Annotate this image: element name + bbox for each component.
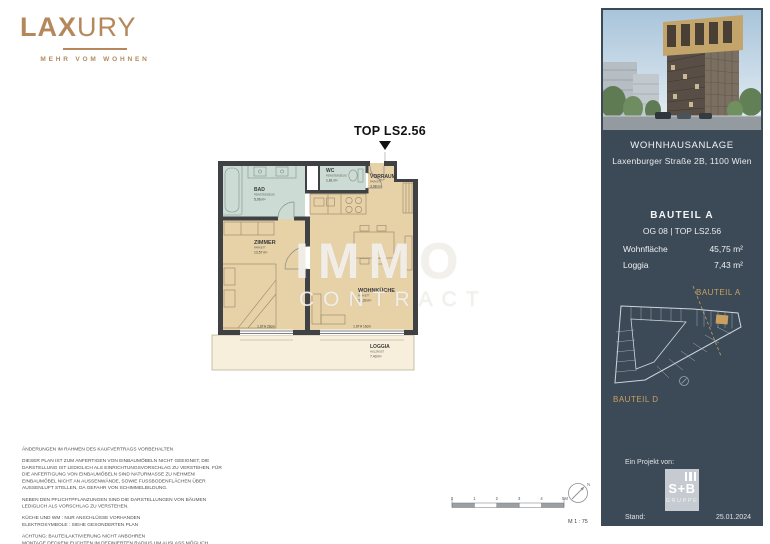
brand-divider [63, 48, 127, 50]
room-label-wc: WC [326, 168, 335, 174]
room-label-loggia: LOGGIA [370, 344, 390, 350]
building-rendering [603, 10, 761, 130]
area-row-value: 7,43 m² [714, 260, 743, 270]
dim-left-window: 1.STH 26cm [257, 325, 275, 329]
project-title: WOHNHAUSANLAGE [601, 140, 763, 151]
room-label-vorraum: VORRAUM [370, 174, 396, 180]
shaft-area [307, 163, 318, 190]
brand-word-bold: LAX [20, 12, 77, 42]
disclaimer-paragraph: ÄNDERUNGEN IM RAHMEN DES KAUFVERTRAGS VO… [22, 446, 252, 453]
disclaimer-paragraph: ACHTUNG: BAUTEILAKTIVIERUNG NICHT ANBOHR… [22, 533, 252, 544]
room-label-zimmer: ZIMMER [254, 240, 276, 246]
unit-title: TOP LS2.56 [354, 124, 426, 138]
disclaimer-text: ÄNDERUNGEN IM RAHMEN DES KAUFVERTRAGS VO… [22, 446, 252, 544]
scale-label: M 1 : 75 [568, 519, 588, 525]
siteplan-label-d: BAUTEIL D [613, 395, 659, 404]
area-row-label: Wohnfläche [623, 244, 668, 254]
stand-row: Stand: 25.01.2024 [625, 514, 751, 521]
site-plan: BAUTEIL A BAUTEIL D [607, 282, 757, 422]
svg-text:1: 1 [473, 496, 476, 501]
bauteil-heading: BAUTEIL A [601, 210, 763, 221]
area-row-value: 45,75 m² [709, 244, 743, 254]
disclaimer-paragraph: NEBEN DEN PFLICHTPFLANZUNGEN SIND DIE DA… [22, 496, 252, 509]
svg-text:PARKETT: PARKETT [358, 294, 370, 298]
svg-text:PARKETT: PARKETT [370, 180, 382, 184]
svg-text:5,06 m²: 5,06 m² [254, 198, 266, 202]
scale-bar: N 0 1 2 3 4 5M M 1 : 75 [450, 478, 600, 536]
svg-text:3,98 m²: 3,98 m² [370, 185, 382, 189]
sb-logo-bars-icon [685, 472, 697, 481]
sb-gruppe-logo: S+B GRUPPE [665, 469, 699, 511]
svg-text:5M: 5M [562, 496, 568, 501]
brand-word-light: URY [77, 12, 137, 42]
zimmer-area [220, 219, 305, 330]
svg-text:3: 3 [518, 496, 521, 501]
highlighted-unit [716, 314, 729, 324]
sidebar: WOHNHAUSANLAGE Laxenburger Straße 2B, 11… [601, 8, 763, 526]
stand-label: Stand: [625, 514, 645, 521]
disclaimer-paragraph: DIESER PLAN IST ZUM ANFERTIGEN VON EINBA… [22, 458, 252, 492]
unit-floor-line: OG 08 | TOP LS2.56 [601, 226, 763, 236]
room-label-bad: BAD [254, 187, 265, 193]
svg-text:7,43 m²: 7,43 m² [370, 355, 382, 359]
project-by-label: Ein Projekt von: [625, 459, 674, 466]
north-compass-icon: N [569, 482, 591, 503]
svg-text:PARKETT: PARKETT [254, 246, 266, 250]
svg-text:FEINSTEINZEUG: FEINSTEINZEUG [254, 193, 275, 197]
stand-date: 25.01.2024 [716, 514, 751, 521]
siteplan-compass-icon [680, 377, 689, 386]
siteplan-label-a: BAUTEIL A [696, 288, 741, 297]
floor-plan: BAD FEINSTEINZEUG 5,06 m² WC FEINSTEINZE… [208, 152, 423, 380]
area-row-wohnflaeche: Wohnfläche 45,75 m² [623, 244, 743, 254]
scale-segments [452, 499, 564, 508]
scale-ticks: 0 1 2 3 4 5M [451, 496, 569, 501]
svg-text:1,81 m²: 1,81 m² [326, 179, 338, 183]
plan-sheet-page: LAXURY MEHR VOM WOHNEN TOP LS2.56 [0, 0, 770, 544]
disclaimer-paragraph: KÜCHE UND WM : NUR ANSCHLÜSSE VORHANDEN … [22, 515, 252, 528]
brand-tagline: MEHR VOM WOHNEN [20, 56, 170, 63]
windows [240, 330, 404, 336]
svg-text:FEINSTEINZEUG: FEINSTEINZEUG [326, 174, 347, 178]
sb-logo-sub: GRUPPE [666, 498, 699, 504]
area-row-loggia: Loggia 7,43 m² [623, 260, 743, 270]
svg-text:21,33 m²: 21,33 m² [358, 299, 372, 303]
svg-text:HOLZROST: HOLZROST [370, 350, 385, 354]
brand-wordmark: LAXURY [20, 14, 170, 41]
svg-text:13,57 m²: 13,57 m² [254, 251, 268, 255]
brand-logo: LAXURY MEHR VOM WOHNEN [20, 14, 170, 63]
area-row-label: Loggia [623, 260, 649, 270]
project-address: Laxenburger Straße 2B, 1100 Wien [601, 156, 763, 166]
entrance-arrow-icon [379, 141, 391, 150]
sb-logo-name: S+B [668, 482, 695, 496]
north-label: N [587, 482, 590, 487]
svg-text:0: 0 [451, 496, 454, 501]
svg-text:2: 2 [496, 496, 499, 501]
svg-text:4: 4 [540, 496, 543, 501]
room-label-wohnkueche: WOHNKÜCHE [358, 287, 395, 294]
dim-right-window: 1.STH 16cm [353, 325, 371, 329]
